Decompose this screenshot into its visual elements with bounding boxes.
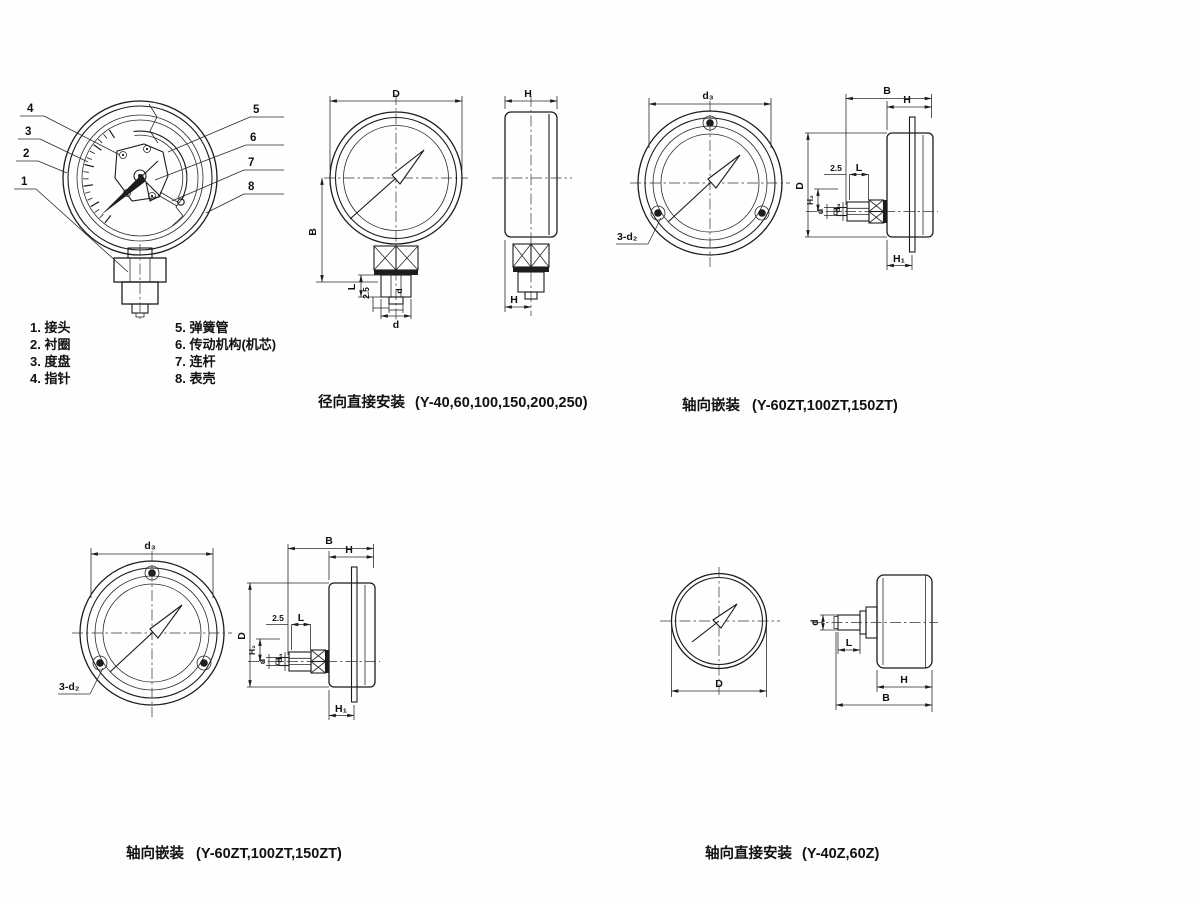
dim-H2: H₂ bbox=[805, 195, 815, 205]
technical-drawing-page: 4 3 2 1 5 6 7 8 1. 接头 2. 衬圈 3. 度盘 4. 指针 … bbox=[0, 0, 1200, 900]
caption-axial-embedded-bottom-models: (Y-60ZT,100ZT,150ZT) bbox=[196, 846, 342, 862]
caption-axial-embedded-top: 轴向嵌装 bbox=[682, 396, 740, 414]
parts-item: 1. 接头 bbox=[30, 320, 70, 335]
cutaway-gauge-view: 4 3 2 1 5 6 7 8 bbox=[14, 101, 284, 322]
dim-B: B bbox=[882, 692, 890, 704]
axial-embedded-side: H B D 2.5 L bbox=[794, 85, 938, 270]
dim-H1: H₁ bbox=[893, 253, 905, 265]
callout-4: 4 bbox=[27, 103, 34, 115]
dim-H: H bbox=[903, 94, 911, 106]
pressure-gauge-drawing: 4 3 2 1 5 6 7 8 1. 接头 2. 衬圈 3. 度盘 4. 指针 … bbox=[0, 0, 1200, 900]
callout-8: 8 bbox=[248, 181, 255, 193]
parts-list: 1. 接头 2. 衬圈 3. 度盘 4. 指针 5. 弹簧管 6. 传动机构(机… bbox=[30, 320, 276, 386]
callout-2: 2 bbox=[23, 148, 29, 160]
dim-2-5: 2.5 bbox=[361, 287, 371, 299]
dim-d4: d₄ bbox=[832, 203, 842, 212]
dim-L: L bbox=[856, 162, 863, 174]
dim-d3: d₃ bbox=[144, 540, 155, 552]
dim-B: B bbox=[325, 535, 333, 547]
dim-d: d bbox=[393, 319, 399, 331]
callout-3: 3 bbox=[25, 126, 31, 138]
parts-item: 3. 度盘 bbox=[30, 354, 70, 369]
dim-2-5: 2.5 bbox=[830, 163, 842, 173]
axial-direct-view: D d L H bbox=[660, 567, 938, 712]
parts-item: 4. 指针 bbox=[30, 371, 70, 386]
dim-L: L bbox=[298, 612, 305, 624]
callout-5: 5 bbox=[253, 104, 260, 116]
connector-fitting bbox=[114, 244, 166, 322]
parts-item: 5. 弹簧管 bbox=[175, 320, 228, 335]
dim-D: D bbox=[236, 632, 248, 640]
parts-item: 7. 连杆 bbox=[175, 354, 215, 369]
dim-3-d2: 3-d₂ bbox=[617, 231, 638, 243]
pointer-needle bbox=[101, 174, 146, 215]
dim-L: L bbox=[846, 637, 853, 649]
dim-B: B bbox=[883, 85, 891, 97]
radial-direct-side: H H bbox=[492, 88, 572, 316]
pointer-needle bbox=[713, 604, 737, 628]
dim-H-bottom: H bbox=[510, 294, 518, 306]
dim-H: H bbox=[345, 544, 353, 556]
caption-radial-direct-models: (Y-40,60,100,150,200,250) bbox=[415, 395, 588, 411]
dim-L: L bbox=[346, 283, 358, 290]
parts-item: 8. 表壳 bbox=[175, 371, 215, 386]
caption-radial-direct: 径向直接安装 bbox=[318, 393, 405, 411]
axial-direct-side: d L H B bbox=[809, 575, 938, 712]
bourdon-tube bbox=[134, 131, 187, 200]
pointer-needle bbox=[392, 150, 424, 184]
callout-labels: 4 3 2 1 5 6 7 8 bbox=[14, 103, 284, 272]
axial-embedded-side: H B D 2.5 L H₂ bbox=[236, 535, 380, 720]
captions: 径向直接安装 (Y-40,60,100,150,200,250) 轴向嵌装 (Y… bbox=[126, 393, 898, 862]
dim-d: d bbox=[815, 209, 825, 214]
dim-d: d bbox=[257, 659, 267, 664]
dim-d: d bbox=[809, 619, 821, 625]
dim-B: B bbox=[307, 228, 319, 236]
caption-axial-direct-models: (Y-40Z,60Z) bbox=[802, 846, 880, 862]
dim-H: H bbox=[900, 674, 908, 686]
axial-embedded-bottom-view: d₃ 3-d₂ H B D bbox=[58, 535, 380, 720]
dim-3-d2: 3-d₂ bbox=[59, 681, 80, 693]
dim-H1: H₁ bbox=[335, 703, 347, 715]
callout-7: 7 bbox=[248, 157, 254, 169]
dim-D: D bbox=[715, 678, 723, 690]
axial-embedded-top-view: d₃ 3-d₂ H B D bbox=[616, 85, 938, 270]
dim-d-small: d bbox=[394, 288, 404, 293]
parts-item: 2. 衬圈 bbox=[30, 337, 70, 352]
dim-D: D bbox=[794, 182, 806, 190]
caption-axial-direct: 轴向直接安装 bbox=[705, 844, 792, 862]
dim-D: D bbox=[392, 88, 400, 100]
dim-2-5: 2.5 bbox=[272, 613, 284, 623]
radial-direct-view: D B L 2.5 d d bbox=[307, 88, 572, 331]
dim-H2: H₂ bbox=[247, 645, 257, 655]
dim-d3: d₃ bbox=[702, 90, 713, 102]
dim-H: H bbox=[524, 88, 532, 100]
caption-axial-embedded-top-models: (Y-60ZT,100ZT,150ZT) bbox=[752, 398, 898, 414]
dim-d4: d₄ bbox=[274, 653, 284, 662]
callout-1: 1 bbox=[21, 176, 28, 188]
caption-axial-embedded-bottom: 轴向嵌装 bbox=[126, 844, 184, 862]
parts-item: 6. 传动机构(机芯) bbox=[175, 337, 276, 352]
callout-6: 6 bbox=[250, 132, 256, 144]
